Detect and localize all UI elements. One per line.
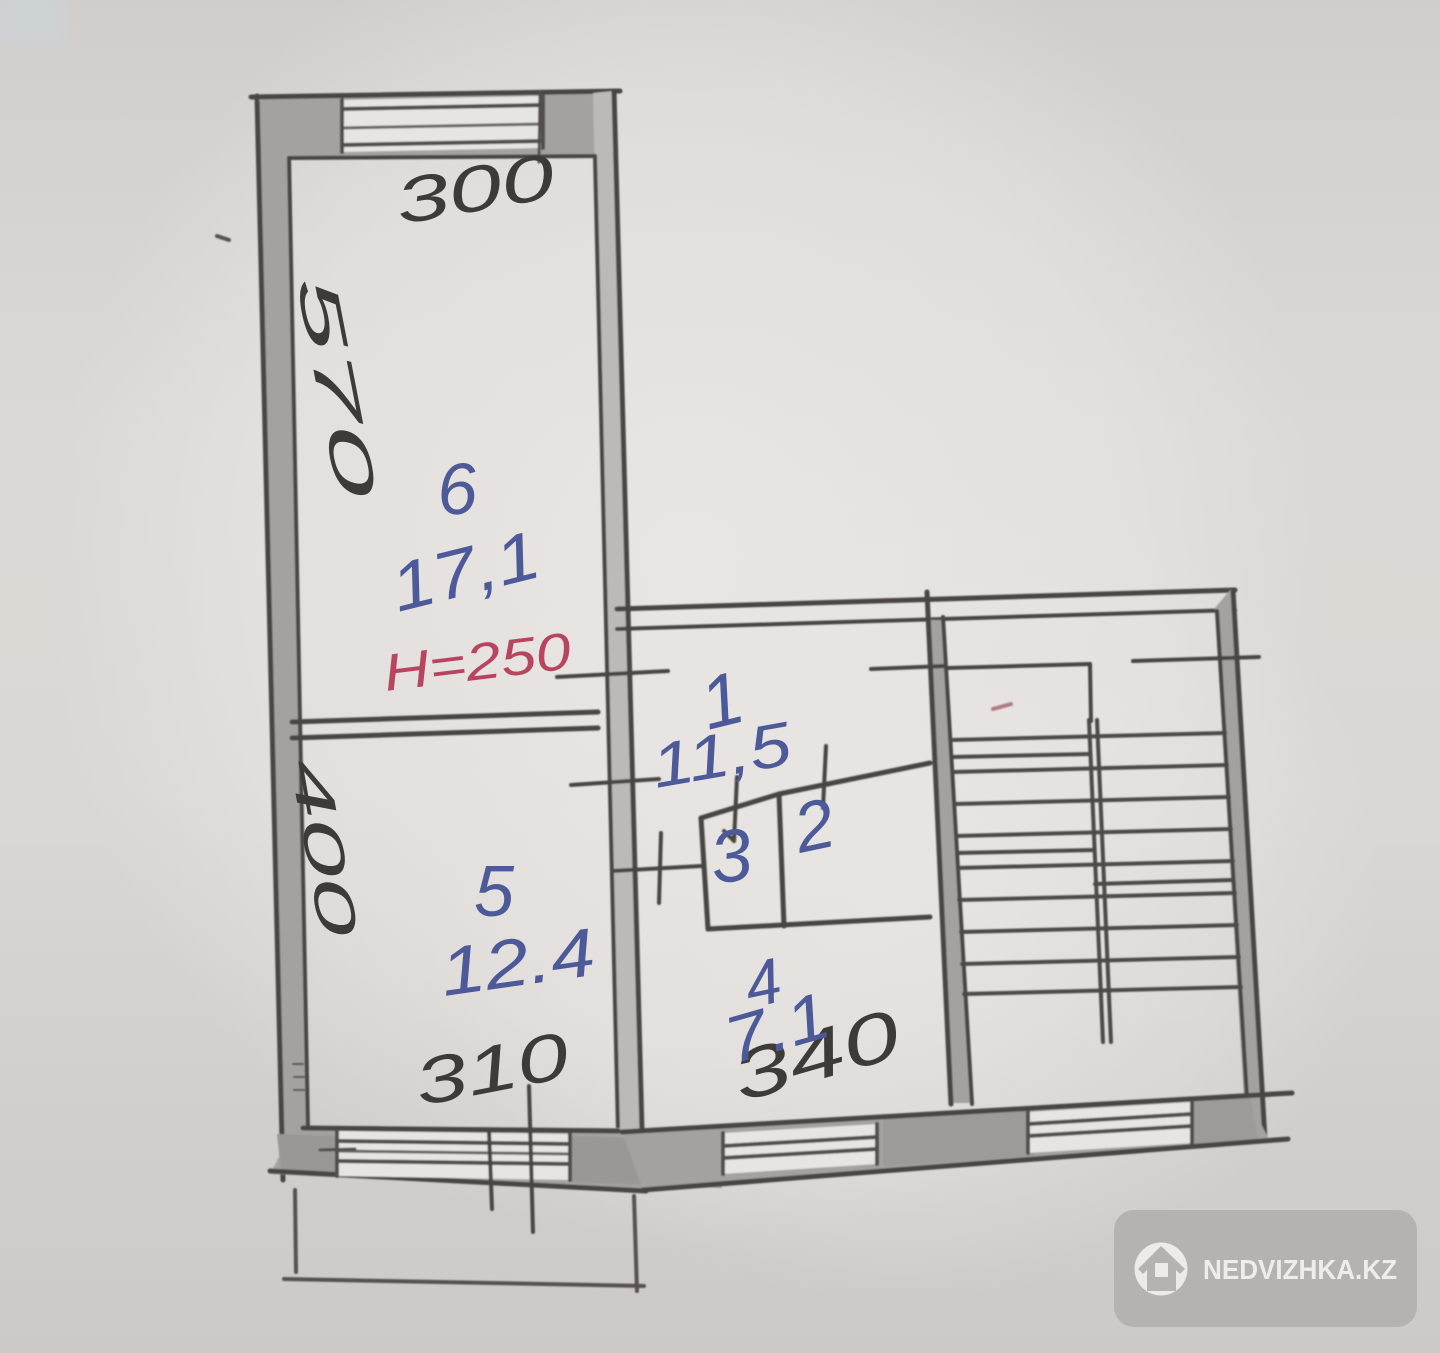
svg-text:6: 6 bbox=[434, 448, 482, 531]
svg-text:NEDVIZHKA.KZ: NEDVIZHKA.KZ bbox=[1203, 1254, 1397, 1285]
svg-text:5: 5 bbox=[474, 852, 515, 932]
